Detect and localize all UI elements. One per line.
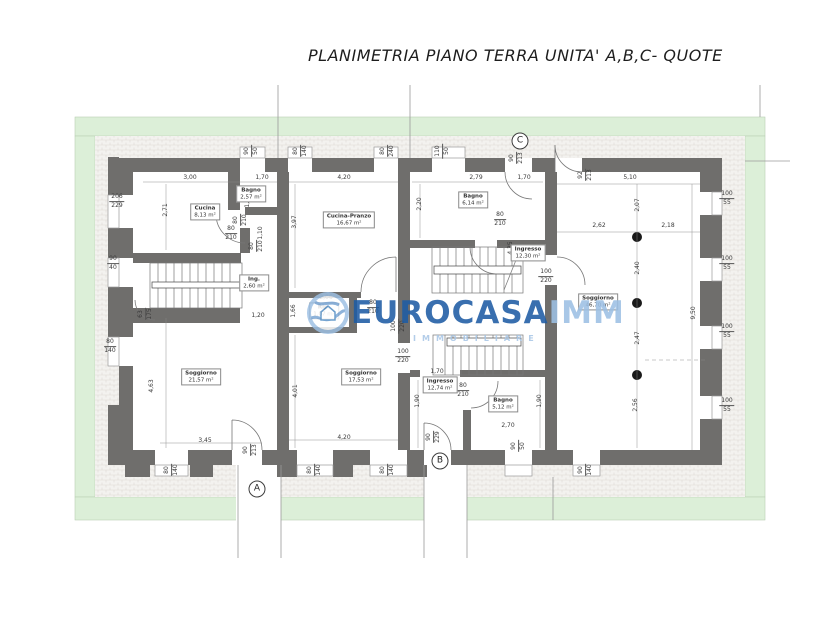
watermark-brand: EUROCASA [351, 295, 549, 331]
watermark-subtitle: IMMOBILIARE [413, 334, 625, 343]
watermark-text: EUROCASAIMM [351, 298, 625, 329]
watermark-brand-suffix: IMM [549, 295, 625, 331]
watermark: EUROCASAIMM IMMOBILIARE [305, 290, 625, 343]
watermark-globe-icon [305, 290, 351, 336]
floor-plan-canvas: PLANIMETRIA PIANO TERRA UNITA' A,B,C- QU… [0, 0, 840, 630]
